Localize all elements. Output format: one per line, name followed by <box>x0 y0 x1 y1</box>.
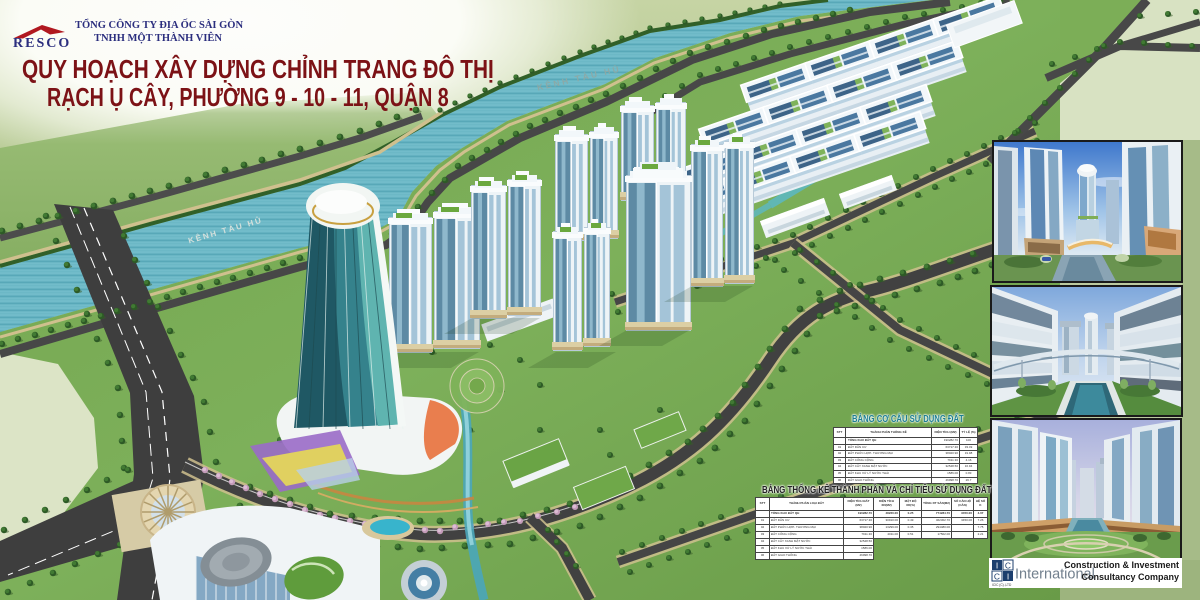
svg-text:C: C <box>994 572 1000 582</box>
svg-text:C: C <box>1005 561 1011 571</box>
svg-text:ICIC (C).,LTD: ICIC (C).,LTD <box>992 583 1012 587</box>
svg-text:I: I <box>996 561 998 571</box>
svg-text:Consultancy Company: Consultancy Company <box>1081 572 1179 582</box>
svg-text:I: I <box>1007 572 1009 582</box>
svg-text:RESCO: RESCO <box>13 36 71 50</box>
svg-text:Construction & Investment: Construction & Investment <box>1064 560 1179 570</box>
